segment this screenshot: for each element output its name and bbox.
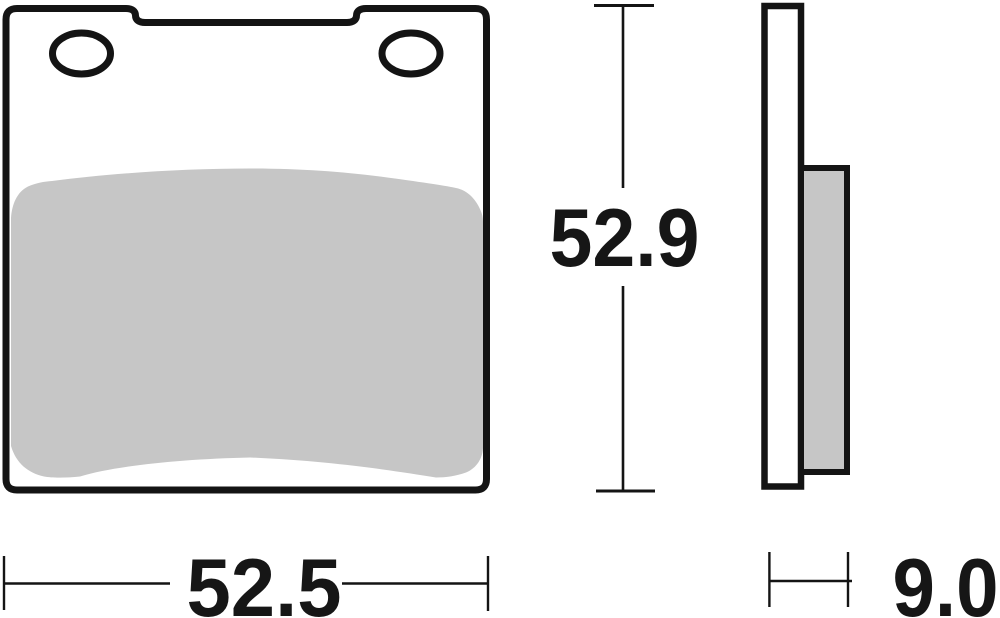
svg-text:52.9: 52.9 [550, 191, 700, 284]
svg-text:52.5: 52.5 [187, 541, 342, 618]
svg-text:9.0: 9.0 [893, 541, 999, 618]
